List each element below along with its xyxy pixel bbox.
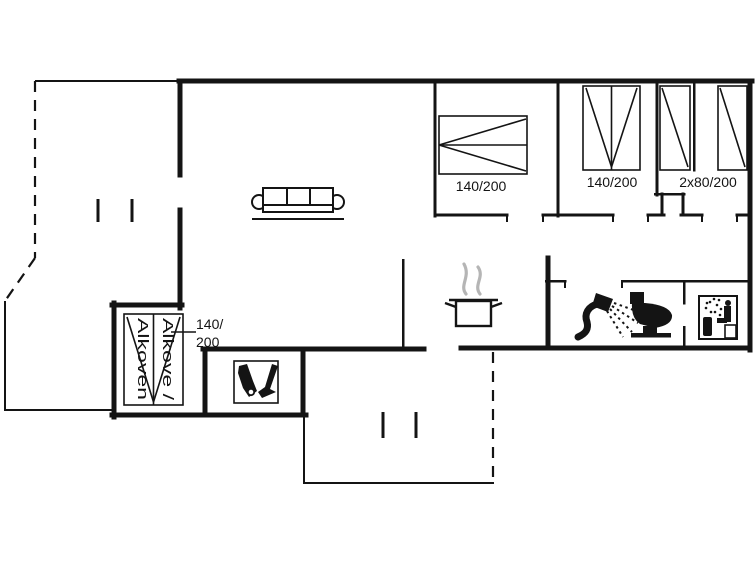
boot-and-brush-icon (234, 361, 278, 403)
toilet-icon (630, 292, 672, 338)
bedroom3-bed-size-label: 2x80/200 (679, 174, 737, 190)
floor-plan: 140/200 140/200 2x80/200 140/ 200 Alkove… (0, 0, 755, 566)
alcove-size-label-line1: 140/ (196, 316, 223, 332)
bedroom1-bed-size-label: 140/200 (456, 178, 507, 194)
cooking-pot-icon (445, 300, 502, 326)
double-bed-icon (583, 86, 640, 170)
bedroom2-bed-size-label: 140/200 (587, 174, 638, 190)
single-bed-icon (718, 86, 747, 170)
terrace-dashed-boundary (5, 81, 493, 483)
sauna-icon (699, 296, 737, 339)
alcove-name-line2: Alkoven (134, 318, 151, 400)
terrace-bench-icon (383, 412, 416, 438)
single-bed-icon (660, 86, 690, 170)
door-jambs (507, 215, 737, 288)
terrace-outlines (5, 81, 494, 484)
steam-icon (464, 264, 481, 294)
floor-plan-page: 140/200 140/200 2x80/200 140/ 200 Alkove… (0, 0, 755, 566)
double-bed-icon (439, 116, 527, 174)
alcove-name-line1: Alkove / (159, 318, 176, 401)
alcove-name-label: Alkove / Alkoven (134, 318, 176, 401)
alcove-size-label-line2: 200 (196, 334, 220, 350)
sofa-icon (252, 188, 344, 219)
terrace-bench-icon (98, 199, 132, 222)
